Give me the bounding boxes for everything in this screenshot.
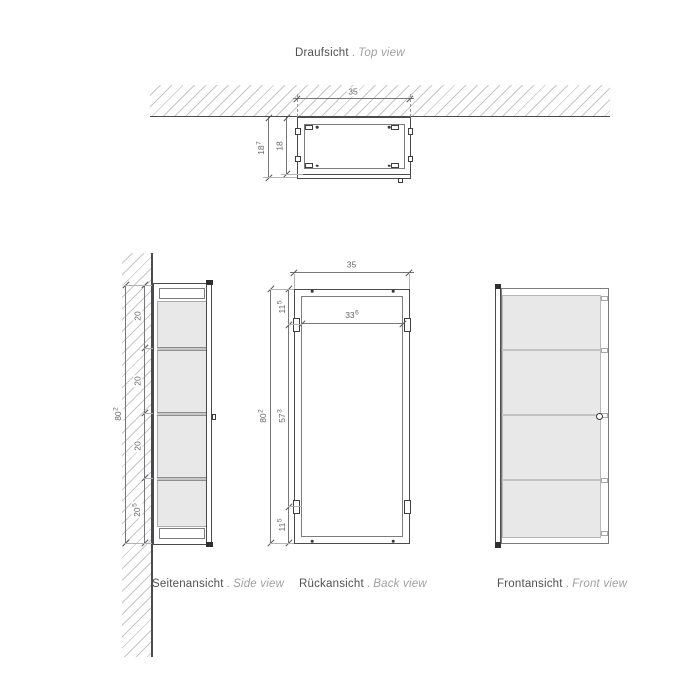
shelf-line (502, 349, 600, 351)
screw-dot (392, 540, 395, 543)
extension-line (288, 506, 302, 507)
shelf-line (502, 414, 600, 416)
top-depth-inner-dim: 18 (275, 140, 284, 152)
side-shelf4-dim: 205 (131, 502, 142, 519)
hinge-block (295, 128, 301, 135)
corner-fitting (391, 163, 399, 168)
back-height-dim: 802 (257, 408, 268, 425)
top-width-dim: 35 (347, 87, 359, 96)
top-view-title-sep: . (352, 47, 355, 59)
side-height-dim: 802 (112, 406, 123, 423)
top-view-knob (398, 178, 403, 183)
back-view-label-en: Back view (373, 578, 427, 590)
top-view-title: Draufsicht.Top view (295, 47, 405, 59)
back-view-cabinet-interior (301, 296, 403, 537)
back-view-label-sep: . (367, 578, 370, 590)
side-view-knob (212, 414, 217, 420)
side-view-label-sep: . (227, 578, 230, 590)
extension-line (281, 174, 303, 175)
extension-line (270, 543, 294, 544)
dimension-line (290, 272, 414, 273)
front-view-label-sep: . (566, 578, 569, 590)
extension-line (144, 348, 153, 349)
screw-dot (392, 290, 395, 293)
screw-dot (316, 126, 319, 129)
screw-dot (388, 164, 391, 167)
extension-line (288, 324, 302, 325)
technical-drawing-sheet: Draufsicht.Top view 35 (0, 0, 700, 700)
extension-line (294, 274, 295, 289)
front-view-knob (596, 413, 604, 421)
corner-fitting (305, 125, 313, 130)
dimension-line (293, 98, 414, 99)
dimension-line (270, 289, 271, 544)
shelf-line (502, 479, 600, 481)
door-cap-bottom (206, 542, 213, 547)
side-view-label-de: Seitenansicht (152, 578, 224, 590)
screw-dot (311, 290, 314, 293)
dimension-line (302, 323, 403, 324)
hinge-block (408, 128, 414, 135)
front-view-label-de: Frontansicht (497, 578, 563, 590)
frame-notch (601, 478, 608, 483)
side-view-label-en: Side view (233, 578, 284, 590)
hinge-block (404, 500, 411, 514)
back-width-dim: 35 (345, 260, 357, 269)
shelf-edge (157, 477, 207, 481)
frame-notch (601, 348, 608, 353)
screw-dot (388, 126, 391, 129)
screw-dot (316, 164, 319, 167)
side-view-label: Seitenansicht.Side view (152, 578, 284, 590)
front-view-door-panel (502, 295, 601, 539)
front-view-label: Frontansicht.Front view (497, 578, 627, 590)
side-view-top-panel (159, 288, 205, 299)
extension-line (263, 177, 297, 178)
top-view-title-en: Top view (358, 47, 405, 59)
hinge-block (295, 156, 301, 163)
top-view-door-front (297, 174, 411, 179)
dimension-line (286, 117, 287, 175)
frame-notch (601, 531, 608, 536)
extension-line (125, 285, 152, 286)
back-view-label-de: Rückansicht (299, 578, 364, 590)
extension-line (144, 413, 153, 414)
top-depth-outer-dim: 187 (255, 140, 266, 157)
back-hinge-bottom-dim: 115 (276, 517, 287, 533)
top-view-cabinet-interior (304, 124, 405, 169)
extension-line (125, 543, 152, 544)
top-view-title-de: Draufsicht (295, 47, 349, 59)
frame-notch (601, 296, 608, 301)
corner-fitting (391, 125, 399, 130)
door-cap-top (206, 280, 213, 285)
extension-line (270, 289, 294, 290)
screw-dot (311, 540, 314, 543)
back-hinge-span-dim: 573 (276, 407, 287, 424)
side-shelf2-dim: 20 (133, 374, 142, 386)
shelf-edge (157, 347, 207, 351)
extension-line (409, 274, 410, 289)
back-hinge-top-dim: 115 (276, 299, 287, 315)
front-view-label-en: Front view (572, 578, 627, 590)
back-inner-width-dim: 336 (344, 309, 361, 320)
dimension-line (268, 117, 269, 178)
back-view-label: Rückansicht.Back view (299, 578, 427, 590)
corner-fitting (305, 163, 313, 168)
dimension-line (125, 285, 126, 543)
hinge-block (408, 156, 414, 163)
top-view-wall-hatch (150, 85, 610, 116)
shelf-edge (157, 412, 207, 416)
extension-line (144, 478, 153, 479)
side-shelf1-dim: 20 (133, 310, 142, 322)
side-shelf3-dim: 20 (133, 439, 142, 451)
side-view-bottom-panel (159, 528, 205, 539)
